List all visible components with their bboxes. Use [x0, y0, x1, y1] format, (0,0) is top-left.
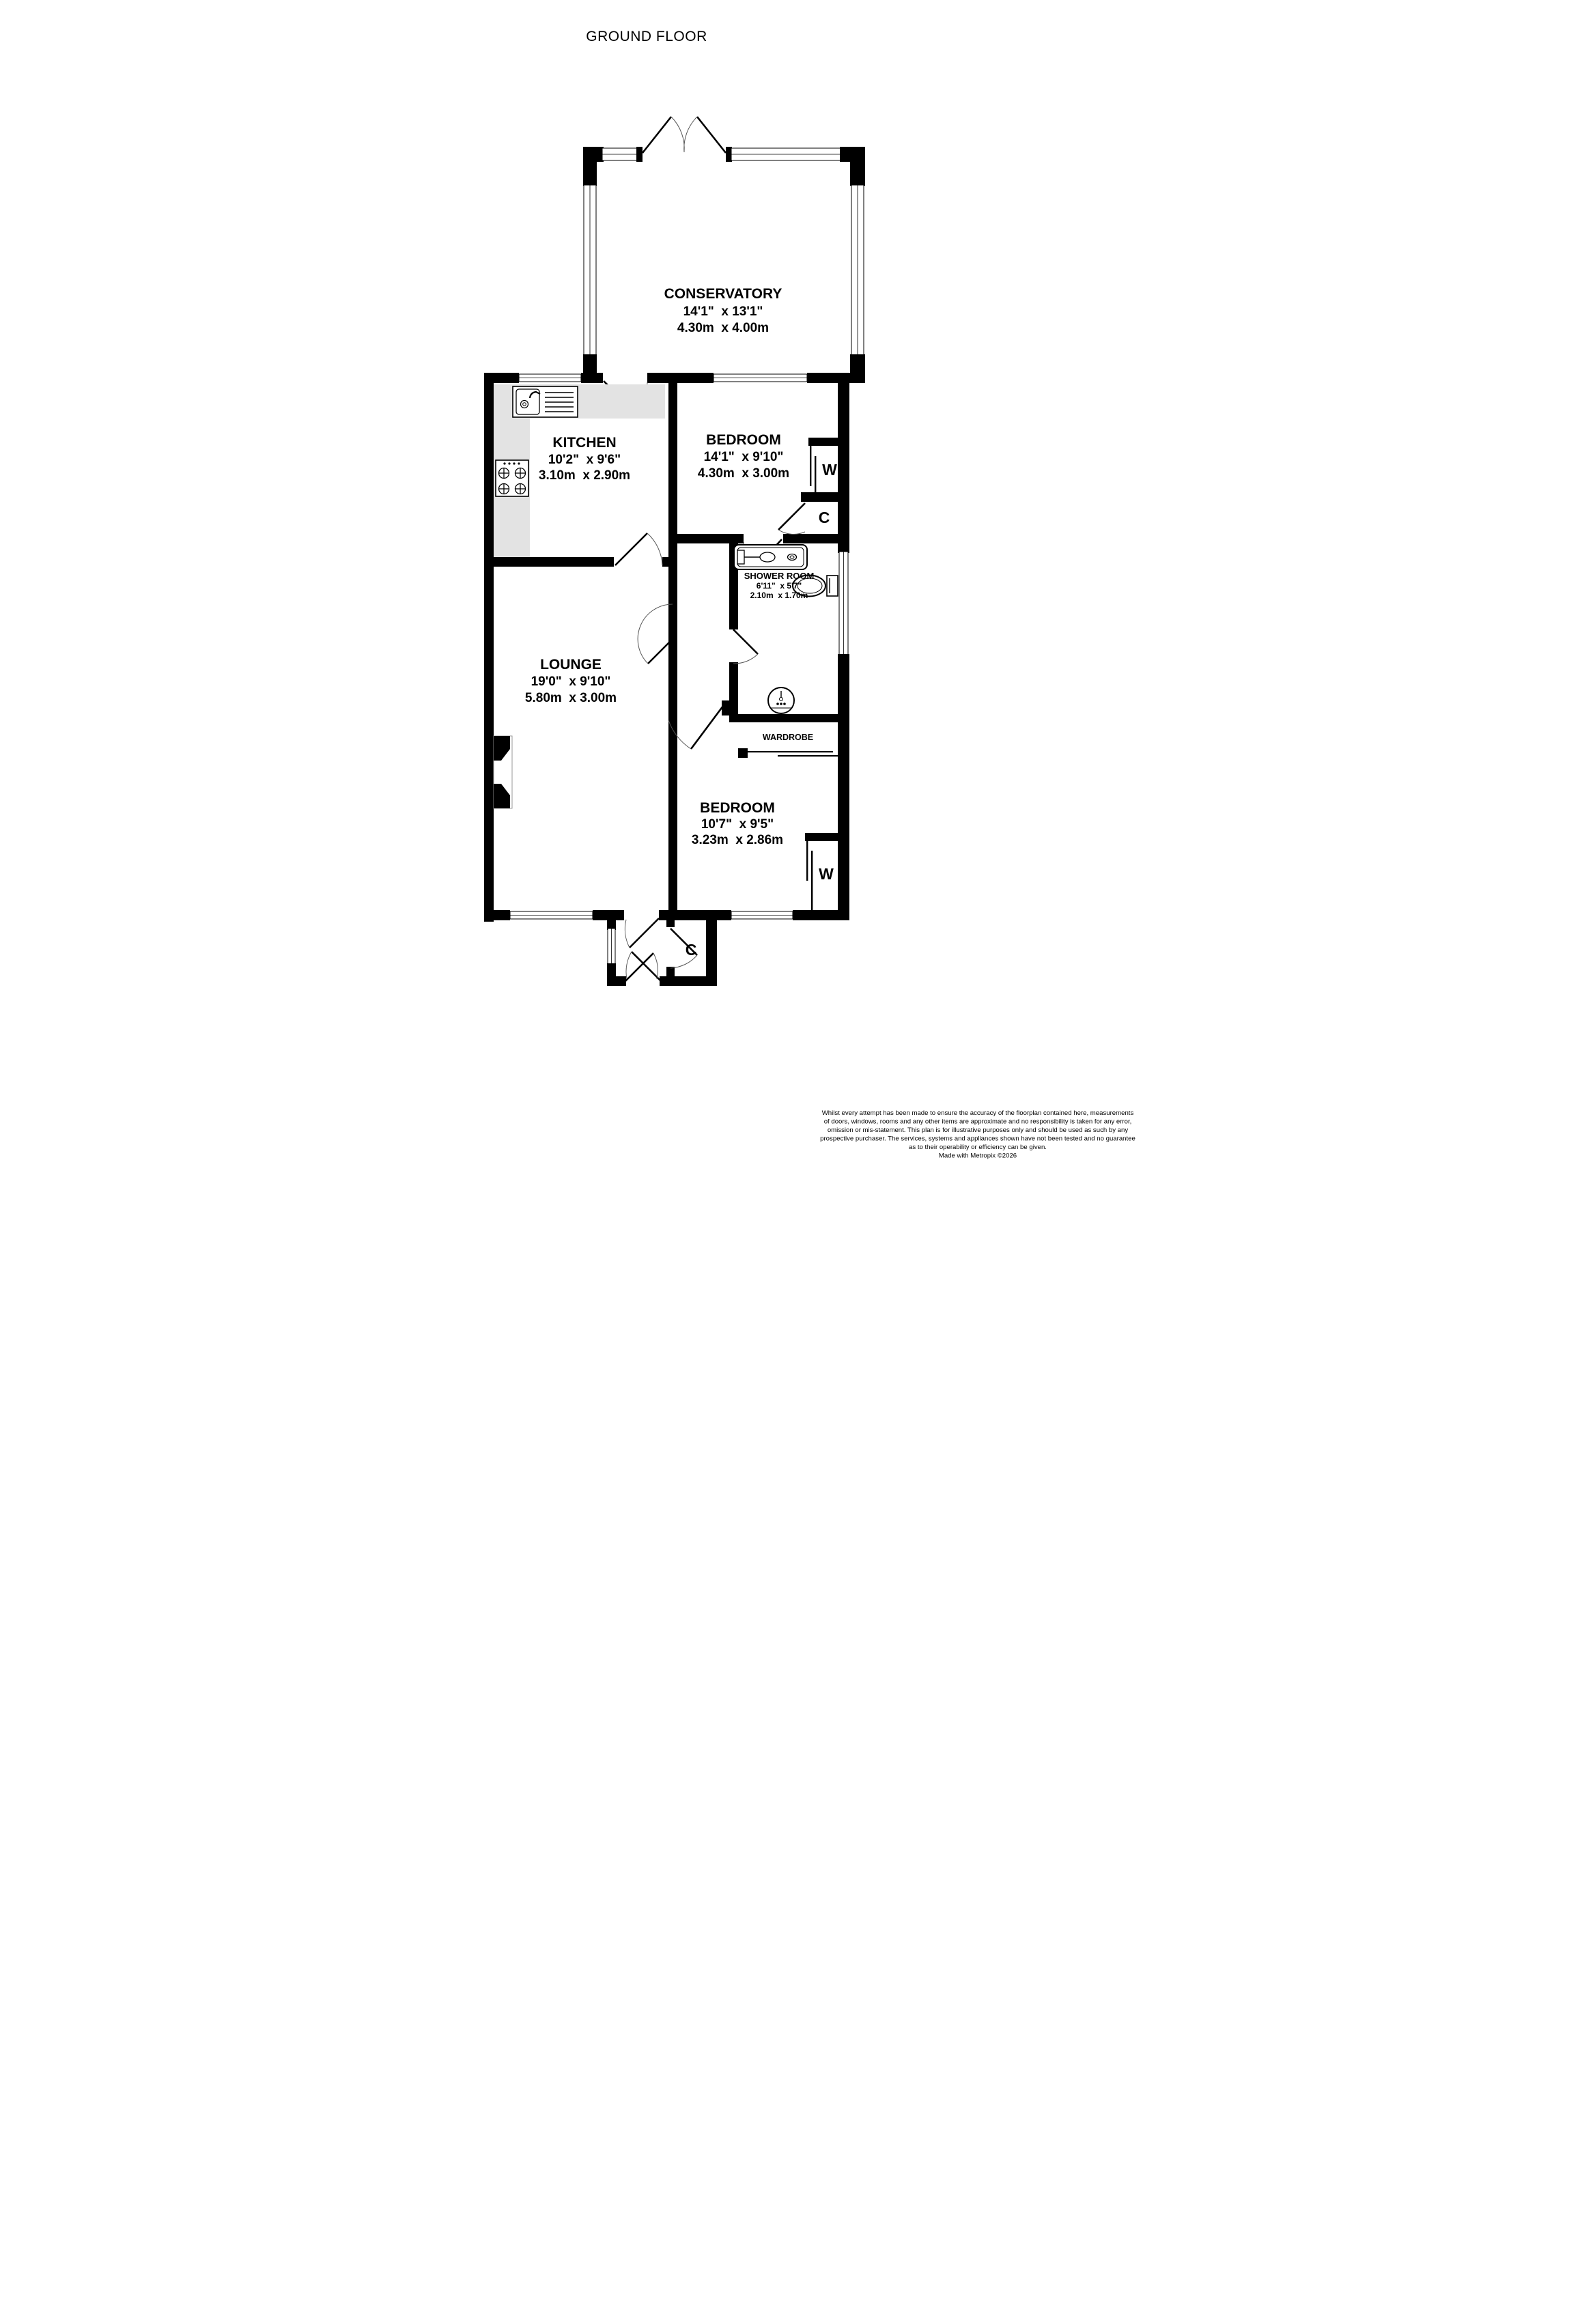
room-dim-imperial: 19'0" x 9'10" [531, 675, 611, 689]
shower-tray-icon [734, 545, 807, 569]
lounge-door [638, 604, 673, 664]
room-name: KITCHEN [552, 435, 616, 451]
room-dim-metric: 4.30m x 3.00m [698, 466, 789, 481]
footer-line-2: of doors, windows, rooms and any other i… [824, 1118, 1132, 1126]
room-name: BEDROOM [700, 800, 775, 816]
room-name: WARDROBE [763, 733, 813, 742]
room-name: CONSERVATORY [664, 286, 782, 302]
bottom-wall [484, 910, 849, 920]
room-dim-metric: 3.10m x 2.90m [539, 468, 630, 483]
footer-line-4: prospective purchaser. The services, sys… [820, 1135, 1135, 1143]
room-dim-imperial: 14'1" x 9'10" [704, 450, 784, 464]
room-name: SHOWER ROOM [744, 571, 815, 581]
conservatory-walls [583, 147, 865, 383]
room-dim-imperial: 10'7" x 9'5" [701, 817, 774, 832]
left-exterior-wall [484, 373, 494, 922]
kitchen-door [615, 533, 662, 565]
cupboard1-label: C [819, 509, 830, 526]
floorplan-canvas: GROUND FLOOR CONSERVATORY 14'1" x 13'1" … [399, 0, 1196, 1162]
room-name: LOUNGE [540, 657, 602, 672]
room-dim-imperial: 10'2" x 9'6" [548, 453, 621, 467]
bedroom2-label: BEDROOM 10'7" x 9'5" 3.23m x 2.86m [692, 800, 783, 847]
page-title: GROUND FLOOR [586, 29, 707, 44]
conservatory-french-doors [643, 117, 726, 153]
cupboard2: C [671, 929, 697, 968]
wardrobe1-label: W [822, 461, 837, 479]
entrance-doors [625, 918, 661, 981]
lounge-label: LOUNGE 19'0" x 9'10" 5.80m x 3.00m [525, 657, 617, 705]
kitchen-sink-icon [513, 386, 578, 417]
main-top-wall [484, 373, 865, 383]
cupboard1: C [778, 503, 830, 534]
room-dim-metric: 2.10m x 1.70m [750, 591, 808, 600]
floorplan-page: GROUND FLOOR CONSERVATORY 14'1" x 13'1" … [399, 0, 1196, 1162]
footer-line-5: as to their operability or efficiency ca… [909, 1144, 1047, 1151]
bedroom2-door [668, 700, 738, 749]
shower-door [733, 629, 758, 664]
kitchen-bottom-wall [484, 557, 677, 567]
room-dim-metric: 5.80m x 3.00m [525, 691, 617, 705]
entrance-porch [607, 920, 717, 986]
footer-disclaimer: Whilst every attempt has been made to en… [820, 1109, 1135, 1160]
room-dim-imperial: 6'11" x 5'7" [757, 581, 802, 591]
fireplace [494, 736, 512, 808]
room-name: BEDROOM [706, 432, 781, 448]
footer-line-6: Made with Metropix ©2026 [939, 1152, 1017, 1160]
bedroom1-label: BEDROOM 14'1" x 9'10" 4.30m x 3.00m [698, 432, 789, 481]
room-dim-metric: 4.30m x 4.00m [677, 321, 769, 335]
basin-icon [768, 688, 794, 713]
footer-line-1: Whilst every attempt has been made to en… [822, 1109, 1134, 1117]
wardrobe-room: WARDROBE [738, 733, 849, 758]
cupboard2-label: C [686, 941, 697, 959]
conservatory-label: CONSERVATORY 14'1" x 13'1" 4.30m x 4.00m [664, 286, 782, 335]
room-dim-imperial: 14'1" x 13'1" [683, 304, 763, 319]
wardrobe2-label: W [819, 865, 834, 883]
footer-line-3: omission or mis-statement. This plan is … [828, 1126, 1128, 1134]
kitchen-label: KITCHEN 10'2" x 9'6" 3.10m x 2.90m [539, 435, 630, 483]
kitchen-hob-icon [496, 460, 528, 496]
room-dim-metric: 3.23m x 2.86m [692, 833, 783, 847]
